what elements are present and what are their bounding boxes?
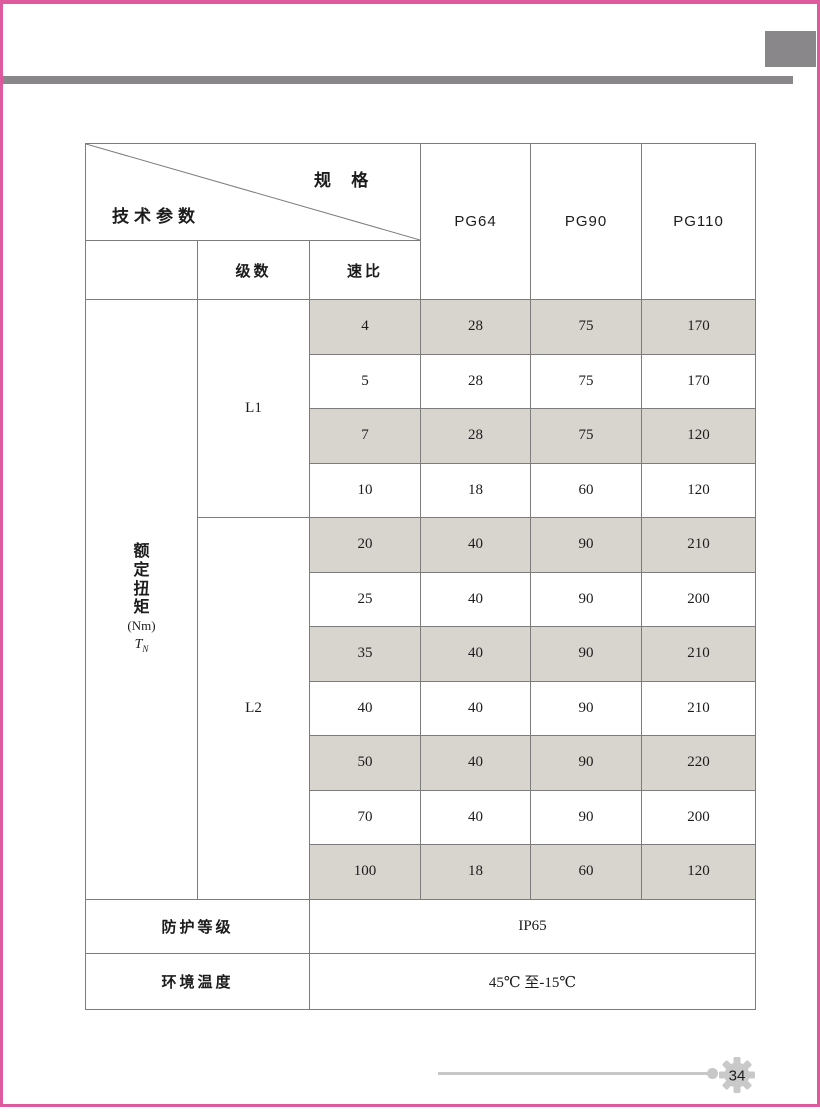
pg64-cell: 18	[421, 845, 531, 900]
ratio-header: 速比	[310, 241, 421, 300]
column-header-pg64: PG64	[421, 144, 531, 300]
temperature-row: 环境温度 45℃ 至-15℃	[86, 954, 756, 1010]
ratio-cell: 50	[310, 736, 421, 791]
page-frame-bottom	[0, 1104, 820, 1107]
pg90-cell: 90	[531, 790, 642, 845]
pg110-cell: 120	[642, 409, 756, 464]
table-row: 额 定 扭 矩 (Nm) TN L1 4 28 75 170	[86, 300, 756, 355]
torque-label-cell: 额 定 扭 矩 (Nm) TN	[86, 300, 198, 900]
torque-unit: (Nm)	[127, 618, 155, 635]
ratio-cell: 5	[310, 354, 421, 409]
empty-header-cell	[86, 241, 198, 300]
protection-label: 防护等级	[86, 899, 310, 954]
ratio-cell: 35	[310, 627, 421, 682]
pg110-cell: 210	[642, 627, 756, 682]
stage-cell-l2: L2	[198, 518, 310, 900]
pg90-cell: 75	[531, 300, 642, 355]
diagonal-header-cell: 规 格 技术参数	[86, 144, 421, 241]
pg64-cell: 40	[421, 627, 531, 682]
pg110-cell: 170	[642, 354, 756, 409]
footer-rule-dot	[707, 1068, 718, 1079]
protection-value: IP65	[310, 899, 756, 954]
params-header-label: 技术参数	[112, 202, 200, 227]
ratio-cell: 25	[310, 572, 421, 627]
pg90-cell: 90	[531, 518, 642, 573]
torque-symbol: TN	[135, 636, 149, 655]
pg90-cell: 75	[531, 409, 642, 464]
page-frame-left	[0, 0, 3, 1107]
pg90-cell: 75	[531, 354, 642, 409]
ratio-cell: 4	[310, 300, 421, 355]
page-frame-top	[0, 0, 820, 4]
pg110-cell: 120	[642, 845, 756, 900]
pg64-cell: 28	[421, 354, 531, 409]
ratio-cell: 20	[310, 518, 421, 573]
column-header-pg110: PG110	[642, 144, 756, 300]
spec-table: 规 格 技术参数 PG64 PG90 PG110 级数 速比 额 定 扭	[85, 143, 756, 1010]
header-corner-block	[765, 31, 816, 67]
pg90-cell: 60	[531, 463, 642, 518]
pg110-cell: 120	[642, 463, 756, 518]
temperature-value: 45℃ 至-15℃	[310, 954, 756, 1010]
catalog-page: 规 格 技术参数 PG64 PG90 PG110 级数 速比 额 定 扭	[0, 0, 820, 1112]
pg64-cell: 28	[421, 409, 531, 464]
header-rule-bar	[3, 76, 793, 84]
stages-header: 级数	[198, 241, 310, 300]
pg90-cell: 90	[531, 627, 642, 682]
pg110-cell: 200	[642, 572, 756, 627]
pg64-cell: 40	[421, 681, 531, 736]
pg110-cell: 210	[642, 681, 756, 736]
pg64-cell: 40	[421, 572, 531, 627]
pg64-cell: 18	[421, 463, 531, 518]
footer-rule-line	[438, 1072, 710, 1075]
pg64-cell: 40	[421, 790, 531, 845]
ratio-cell: 100	[310, 845, 421, 900]
ratio-cell: 7	[310, 409, 421, 464]
protection-row: 防护等级 IP65	[86, 899, 756, 954]
column-header-pg90: PG90	[531, 144, 642, 300]
torque-vertical-label: 额 定 扭 矩 (Nm) TN	[86, 543, 197, 656]
pg110-cell: 220	[642, 736, 756, 791]
pg90-cell: 90	[531, 736, 642, 791]
header-row-1: 规 格 技术参数 PG64 PG90 PG110	[86, 144, 756, 241]
pg64-cell: 28	[421, 300, 531, 355]
pg64-cell: 40	[421, 518, 531, 573]
pg90-cell: 60	[531, 845, 642, 900]
stage-cell-l1: L1	[198, 300, 310, 518]
pg64-cell: 40	[421, 736, 531, 791]
pg90-cell: 90	[531, 681, 642, 736]
ratio-cell: 70	[310, 790, 421, 845]
gear-icon: 34	[718, 1056, 756, 1094]
page-number: 34	[729, 1068, 746, 1085]
pg110-cell: 200	[642, 790, 756, 845]
ratio-cell: 40	[310, 681, 421, 736]
spec-header-label: 规 格	[314, 166, 376, 191]
pg110-cell: 210	[642, 518, 756, 573]
pg110-cell: 170	[642, 300, 756, 355]
pg90-cell: 90	[531, 572, 642, 627]
temperature-label: 环境温度	[86, 954, 310, 1010]
ratio-cell: 10	[310, 463, 421, 518]
